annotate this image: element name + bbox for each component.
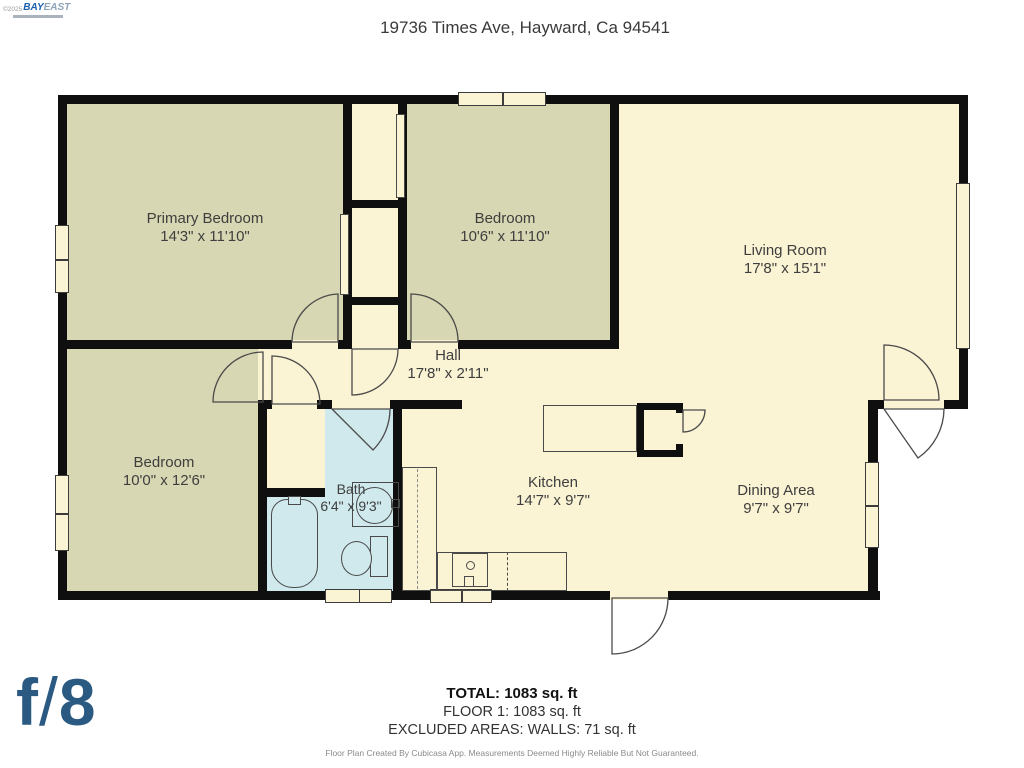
- room-name: Living Room: [743, 242, 826, 260]
- door-arc: [332, 409, 390, 450]
- total-area: TOTAL: 1083 sq. ft: [325, 685, 698, 702]
- door-arc: [352, 349, 398, 395]
- room-label-dining-area: Dining Area 9'7" x 9'7": [737, 482, 815, 519]
- disclaimer-text: Floor Plan Created By Cubicasa App. Meas…: [325, 748, 698, 758]
- room-label-primary-bedroom: Primary Bedroom 14'3" x 11'10": [147, 210, 264, 247]
- room-name: Bedroom: [460, 210, 550, 228]
- room-dims: 17'8" x 15'1": [743, 260, 826, 278]
- door-arc: [612, 598, 668, 654]
- room-dims: 14'7" x 9'7": [516, 492, 590, 510]
- door-arc: [884, 409, 944, 458]
- room-dims: 14'3" x 11'10": [147, 228, 264, 246]
- room-name: Bedroom: [123, 454, 205, 472]
- door-arc: [411, 294, 458, 342]
- room-dims: 10'0" x 12'6": [123, 472, 205, 490]
- room-dims: 10'6" x 11'10": [460, 228, 550, 246]
- f8-logo-slash: /: [39, 664, 59, 740]
- room-name: Kitchen: [516, 474, 590, 492]
- room-label-bedroom-top: Bedroom 10'6" x 11'10": [460, 210, 550, 247]
- room-label-bedroom-left: Bedroom 10'0" x 12'6": [123, 454, 205, 491]
- room-name: Hall: [407, 347, 488, 365]
- excluded-area: EXCLUDED AREAS: WALLS: 71 sq. ft: [325, 722, 698, 738]
- room-label-living-room: Living Room 17'8" x 15'1": [743, 242, 826, 279]
- room-label-bath: Bath 6'4" x 9'3": [320, 481, 381, 515]
- door-arc: [213, 352, 263, 402]
- f8-logo-eight: 8: [59, 665, 97, 739]
- room-name: Primary Bedroom: [147, 210, 264, 228]
- room-label-kitchen: Kitchen 14'7" x 9'7": [516, 474, 590, 511]
- f8-logo: f/8: [16, 668, 97, 736]
- door-arc: [884, 345, 939, 400]
- floor-area: FLOOR 1: 1083 sq. ft: [325, 704, 698, 720]
- door-arc: [683, 410, 705, 432]
- room-dims: 9'7" x 9'7": [737, 500, 815, 518]
- door-arc: [292, 294, 338, 342]
- room-dims: 6'4" x 9'3": [320, 498, 381, 515]
- room-label-hall: Hall 17'8" x 2'11": [407, 347, 488, 384]
- area-summary: TOTAL: 1083 sq. ft FLOOR 1: 1083 sq. ft …: [325, 685, 698, 758]
- room-name: Dining Area: [737, 482, 815, 500]
- door-arc: [272, 356, 320, 404]
- f8-logo-f: f: [16, 665, 39, 739]
- door-swing-arcs-layer: [0, 0, 1024, 768]
- room-name: Bath: [320, 481, 381, 498]
- floor-plan-page: ©2025 BAY EAST 19736 Times Ave, Hayward,…: [0, 0, 1024, 768]
- room-dims: 17'8" x 2'11": [407, 365, 488, 383]
